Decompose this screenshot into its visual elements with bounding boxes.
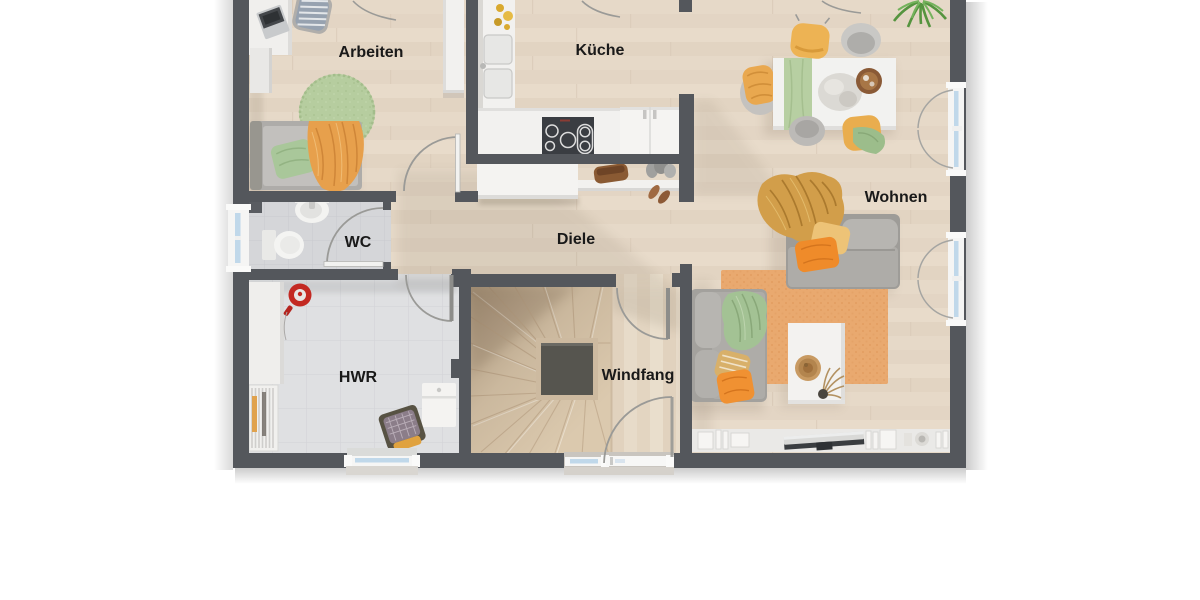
svg-text:WC: WC: [345, 234, 372, 251]
svg-text:Küche: Küche: [576, 42, 625, 59]
svg-text:Wohnen: Wohnen: [865, 189, 928, 206]
svg-text:Diele: Diele: [557, 231, 595, 248]
svg-text:Windfang: Windfang: [602, 367, 675, 384]
svg-text:HWR: HWR: [339, 369, 378, 386]
svg-text:Arbeiten: Arbeiten: [339, 44, 404, 61]
